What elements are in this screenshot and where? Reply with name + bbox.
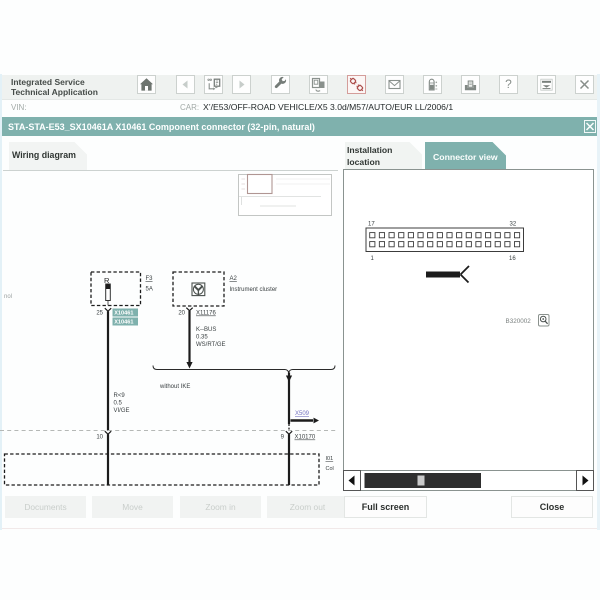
svg-text:without IKE: without IKE <box>159 384 190 390</box>
svg-text:32: 32 <box>510 222 517 228</box>
svg-text:Instrument cluster: Instrument cluster <box>230 287 278 293</box>
svg-text:10: 10 <box>96 435 103 441</box>
svg-text:WS/RT/GE: WS/RT/GE <box>196 342 226 348</box>
svg-text:16: 16 <box>509 256 516 262</box>
svg-text:X509: X509 <box>295 411 310 417</box>
svg-text:VI/GE: VI/GE <box>114 408 130 414</box>
svg-text:X11176: X11176 <box>196 311 216 317</box>
svg-text:B320002: B320002 <box>506 318 532 325</box>
svg-text:F3: F3 <box>146 276 154 282</box>
svg-text:0.35: 0.35 <box>196 335 208 341</box>
svg-text:X10461: X10461 <box>114 320 133 326</box>
svg-text:5A: 5A <box>146 287 153 293</box>
svg-text:20: 20 <box>178 311 185 317</box>
svg-text:0.5: 0.5 <box>114 401 123 407</box>
svg-text:X10170: X10170 <box>295 435 316 441</box>
svg-text:25: 25 <box>96 311 103 317</box>
svg-text:9: 9 <box>281 435 285 441</box>
svg-text:X10461: X10461 <box>114 311 133 317</box>
svg-text:R<9: R<9 <box>114 393 126 399</box>
svg-text:A2: A2 <box>230 276 238 282</box>
svg-text:K--BUS: K--BUS <box>196 327 216 333</box>
svg-text:I01: I01 <box>326 456 334 462</box>
svg-text:17: 17 <box>368 222 375 228</box>
svg-text:Col: Col <box>326 466 334 472</box>
svg-text:nol: nol <box>4 294 12 300</box>
